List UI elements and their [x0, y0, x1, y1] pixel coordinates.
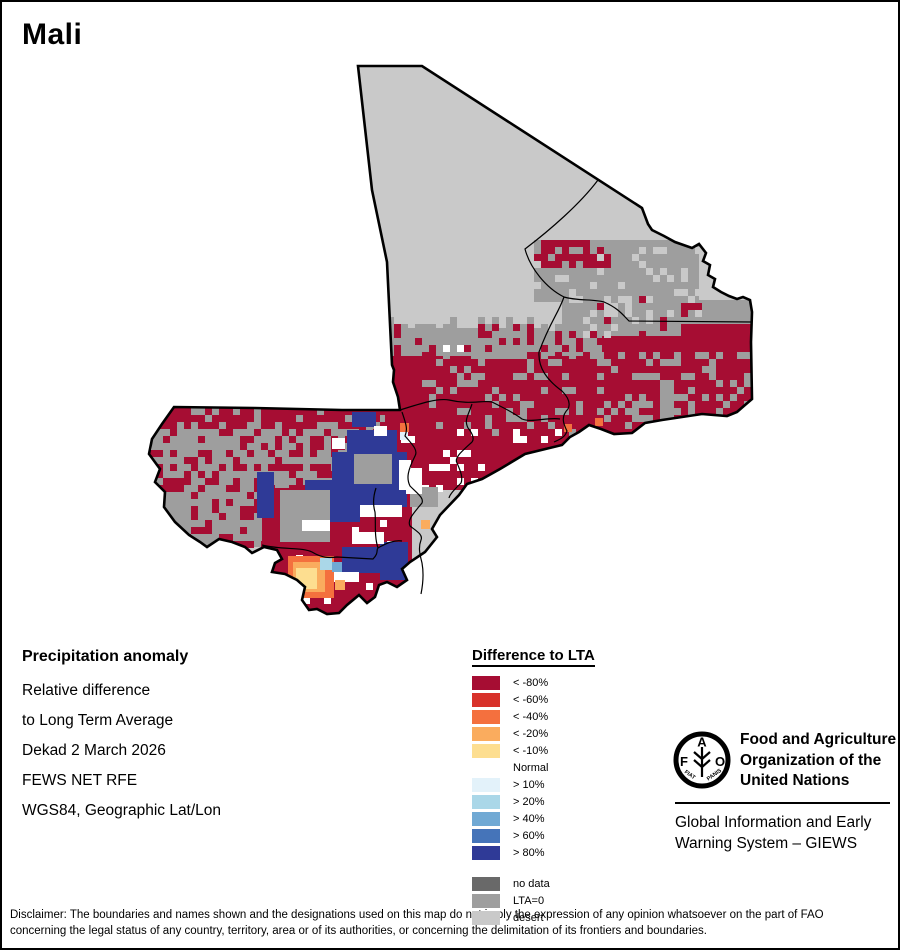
- map-cell: [184, 408, 191, 415]
- map-patch: [352, 412, 376, 427]
- map-cell: [499, 394, 506, 401]
- map-cell: [457, 345, 464, 352]
- map-cell: [205, 478, 212, 485]
- map-cell: [590, 324, 597, 331]
- map-cell: [709, 373, 716, 380]
- info-lines: Relative differenceto Long Term AverageD…: [22, 676, 322, 826]
- map-cell: [576, 338, 583, 345]
- fao-divider: [675, 802, 890, 804]
- map-cell: [268, 415, 275, 422]
- map-cell: [394, 352, 401, 359]
- map-patch: [296, 568, 317, 589]
- map-cell: [527, 324, 534, 331]
- map-cell: [219, 464, 226, 471]
- map-cell: [394, 331, 401, 338]
- legend-row: LTA=0: [472, 892, 642, 909]
- map-cell: [548, 247, 555, 254]
- map-cell: [506, 415, 513, 422]
- map-cell: [429, 324, 436, 331]
- map-cell: [730, 331, 737, 338]
- map-cell: [436, 464, 443, 471]
- map-patch: [354, 454, 392, 484]
- map-cell: [618, 338, 625, 345]
- map-cell: [506, 338, 513, 345]
- map-cell: [688, 373, 695, 380]
- legend-row: < -10%: [472, 742, 642, 759]
- map-cell: [569, 352, 576, 359]
- map-cell: [240, 415, 247, 422]
- map-cell: [226, 450, 233, 457]
- map-cell: [744, 324, 751, 331]
- map-cell: [597, 247, 604, 254]
- legend-row: < -60%: [472, 691, 642, 708]
- info-line: WGS84, Geographic Lat/Lon: [22, 796, 322, 826]
- map-cell: [429, 464, 436, 471]
- map-cell: [506, 317, 513, 324]
- map-cell: [611, 310, 618, 317]
- map-cell: [450, 324, 457, 331]
- map-cell: [667, 359, 674, 366]
- map-cell: [632, 373, 639, 380]
- map-cell: [534, 352, 541, 359]
- map-cell: [709, 366, 716, 373]
- map-cell: [338, 415, 345, 422]
- map-cell: [681, 422, 688, 429]
- giews-label: Global Information and Early Warning Sys…: [675, 812, 871, 854]
- map-cell: [457, 429, 464, 436]
- map-cell: [219, 513, 226, 520]
- map-cell: [471, 352, 478, 359]
- map-cell: [681, 373, 688, 380]
- map-cell: [268, 611, 275, 618]
- map-cell: [639, 394, 646, 401]
- map-cell: [569, 261, 576, 268]
- map-cell: [233, 485, 240, 492]
- map-cell: [149, 485, 156, 492]
- map-cell: [149, 408, 156, 415]
- map-cell: [317, 415, 324, 422]
- map-cell: [205, 527, 212, 534]
- map-cell: [674, 429, 681, 436]
- map-cell: [247, 541, 254, 548]
- legend-row: desert: [472, 909, 642, 926]
- map-cell: [534, 331, 541, 338]
- map-cell: [387, 520, 394, 527]
- map-cell: [583, 254, 590, 261]
- legend-label: > 20%: [513, 796, 545, 808]
- map-cell: [436, 422, 443, 429]
- map-cell: [618, 282, 625, 289]
- map-cell: [268, 422, 275, 429]
- map-cell: [702, 352, 709, 359]
- map-cell: [191, 415, 198, 422]
- map-cell: [513, 338, 520, 345]
- map-cell: [492, 338, 499, 345]
- legend-swatch: [472, 829, 500, 843]
- map-cell: [520, 352, 527, 359]
- map-cell: [667, 408, 674, 415]
- map-cell: [198, 415, 205, 422]
- map-cell: [695, 331, 702, 338]
- map-cell: [604, 261, 611, 268]
- map-cell: [485, 331, 492, 338]
- map-cell: [541, 261, 548, 268]
- map-cell: [156, 408, 163, 415]
- map-cell: [555, 429, 562, 436]
- map-cell: [646, 359, 653, 366]
- map-cell: [695, 303, 702, 310]
- map-cell: [562, 254, 569, 261]
- map-cell: [660, 247, 667, 254]
- map-cell: [667, 352, 674, 359]
- map-cell: [436, 331, 443, 338]
- map-cell: [240, 506, 247, 513]
- map-cell: [275, 436, 282, 443]
- map-cell: [499, 338, 506, 345]
- map-cell: [170, 429, 177, 436]
- map-cell: [562, 345, 569, 352]
- map-cell: [534, 485, 541, 492]
- map-patch: [400, 423, 409, 432]
- map-patch: [335, 580, 345, 590]
- map-cell: [667, 380, 674, 387]
- map-cell: [513, 415, 520, 422]
- map-cell: [534, 282, 541, 289]
- map-cell: [289, 471, 296, 478]
- legend-swatch: [472, 676, 500, 690]
- map-cell: [653, 373, 660, 380]
- map-cell: [604, 415, 611, 422]
- map-cell: [338, 534, 345, 541]
- map-cell: [660, 401, 667, 408]
- map-cell: [681, 275, 688, 282]
- map-cell: [597, 338, 604, 345]
- map-cell: [527, 366, 534, 373]
- map-cell: [156, 450, 163, 457]
- map-cell: [667, 275, 674, 282]
- map-cell: [485, 422, 492, 429]
- map-cell: [597, 268, 604, 275]
- map-cell: [576, 408, 583, 415]
- map-patch: [360, 505, 402, 517]
- legend-label: < -40%: [513, 711, 548, 723]
- map-cell: [646, 268, 653, 275]
- map-cell: [569, 289, 576, 296]
- map-cell: [429, 380, 436, 387]
- map-cell: [226, 429, 233, 436]
- map-cell: [723, 401, 730, 408]
- map-cell: [443, 324, 450, 331]
- map-cell: [303, 415, 310, 422]
- legend-row: no data: [472, 875, 642, 892]
- map-cell: [541, 387, 548, 394]
- map-cell: [352, 401, 359, 408]
- map-cell: [457, 373, 464, 380]
- map-cell: [548, 422, 555, 429]
- map-cell: [660, 429, 667, 436]
- map-cell: [282, 422, 289, 429]
- map-cell: [317, 471, 324, 478]
- map-cell: [429, 331, 436, 338]
- map-cell: [590, 310, 597, 317]
- map-cell: [611, 338, 618, 345]
- map-cell: [583, 261, 590, 268]
- map-cell: [632, 401, 639, 408]
- legend-swatch: [472, 795, 500, 809]
- map-cell: [226, 415, 233, 422]
- map-cell: [555, 359, 562, 366]
- map-cell: [149, 415, 156, 422]
- map-cell: [485, 352, 492, 359]
- map-cell: [177, 415, 184, 422]
- map-cell: [660, 359, 667, 366]
- map-cell: [443, 345, 450, 352]
- map-cell: [247, 513, 254, 520]
- legend-swatch: [472, 761, 500, 775]
- map-cell: [170, 415, 177, 422]
- map-cell: [163, 541, 170, 548]
- map-cell: [338, 401, 345, 408]
- map-cell: [240, 436, 247, 443]
- map-cell: [247, 415, 254, 422]
- map-patch: [257, 472, 274, 518]
- legend-row: < -20%: [472, 725, 642, 742]
- map-cell: [695, 352, 702, 359]
- map-cell: [443, 450, 450, 457]
- fao-letter-o: O: [715, 754, 725, 769]
- map-cell: [506, 331, 513, 338]
- map-cell: [177, 478, 184, 485]
- map-cell: [611, 324, 618, 331]
- map-cell: [660, 352, 667, 359]
- map-cell: [184, 422, 191, 429]
- map-cell: [639, 261, 646, 268]
- map-cell: [702, 394, 709, 401]
- map-cell: [660, 380, 667, 387]
- map-cell: [233, 478, 240, 485]
- map-cell: [394, 345, 401, 352]
- map-cell: [618, 296, 625, 303]
- map-cell: [177, 541, 184, 548]
- map-cell: [289, 436, 296, 443]
- map-cell: [674, 352, 681, 359]
- map-cell: [688, 387, 695, 394]
- map-cell: [541, 345, 548, 352]
- map-cell: [359, 401, 366, 408]
- map-cell: [513, 324, 520, 331]
- map-cell: [541, 324, 548, 331]
- map-cell: [681, 268, 688, 275]
- map-cell: [345, 401, 352, 408]
- map-cell: [590, 331, 597, 338]
- map-cell: [261, 443, 268, 450]
- map-cell: [639, 352, 646, 359]
- map-cell: [660, 268, 667, 275]
- legend-swatch: [472, 846, 500, 860]
- map-cell: [513, 352, 520, 359]
- map-cell: [548, 240, 555, 247]
- map-cell: [625, 422, 632, 429]
- map-cell: [646, 310, 653, 317]
- map-cell: [275, 464, 282, 471]
- map-cell: [611, 366, 618, 373]
- map-cell: [520, 401, 527, 408]
- map-cell: [324, 429, 331, 436]
- map-cell: [464, 345, 471, 352]
- map-cell: [310, 415, 317, 422]
- map-cell: [149, 401, 156, 408]
- map-patch: [320, 558, 332, 570]
- map-cell: [170, 485, 177, 492]
- map-cell: [380, 401, 387, 408]
- map-cell: [198, 527, 205, 534]
- map-cell: [429, 401, 436, 408]
- map-cell: [289, 541, 296, 548]
- map-cell: [541, 352, 548, 359]
- map-cell: [198, 471, 205, 478]
- map-cell: [415, 324, 422, 331]
- map-cell: [590, 282, 597, 289]
- map-cell: [527, 331, 534, 338]
- map-cell: [191, 527, 198, 534]
- map-cell: [296, 422, 303, 429]
- map-cell: [527, 317, 534, 324]
- map-cell: [653, 275, 660, 282]
- map-cell: [310, 443, 317, 450]
- map-cell: [681, 394, 688, 401]
- map-cell: [709, 422, 716, 429]
- map-cell: [485, 324, 492, 331]
- legend-row: > 40%: [472, 810, 642, 827]
- map-cell: [660, 324, 667, 331]
- map-cell: [618, 401, 625, 408]
- map-cell: [646, 401, 653, 408]
- map-cell: [625, 408, 632, 415]
- map-cell: [681, 324, 688, 331]
- map-cell: [205, 520, 212, 527]
- map-cell: [226, 499, 233, 506]
- map-cell: [338, 422, 345, 429]
- map-cell: [163, 527, 170, 534]
- map-cell: [513, 429, 520, 436]
- map-cell: [625, 394, 632, 401]
- map-cell: [268, 464, 275, 471]
- map-cell: [443, 464, 450, 471]
- info-line: Dekad 2 March 2026: [22, 736, 322, 766]
- map-cell: [394, 534, 401, 541]
- map-cell: [296, 464, 303, 471]
- map-cell: [184, 415, 191, 422]
- map-cell: [555, 275, 562, 282]
- map-cell: [730, 380, 737, 387]
- info-line: FEWS NET RFE: [22, 766, 322, 796]
- map-cell: [681, 338, 688, 345]
- map-cell: [366, 401, 373, 408]
- map-cell: [660, 422, 667, 429]
- map-cell: [534, 254, 541, 261]
- map-cell: [716, 352, 723, 359]
- map-cell: [485, 394, 492, 401]
- map-cell: [464, 366, 471, 373]
- map-cell: [513, 345, 520, 352]
- legend-swatch: [472, 911, 500, 925]
- map-cell: [422, 324, 429, 331]
- map-cell: [450, 331, 457, 338]
- legend-label: desert: [513, 912, 544, 924]
- map-cell: [688, 401, 695, 408]
- map-cell: [205, 422, 212, 429]
- map-cell: [443, 352, 450, 359]
- map-cell: [674, 394, 681, 401]
- legend-label: > 40%: [513, 813, 545, 825]
- map-cell: [429, 352, 436, 359]
- map-cell: [205, 457, 212, 464]
- map-cell: [541, 254, 548, 261]
- map-cell: [632, 408, 639, 415]
- map-cell: [387, 415, 394, 422]
- map-cell: [674, 359, 681, 366]
- map-cell: [408, 436, 415, 443]
- map-cell: [170, 464, 177, 471]
- map-cell: [408, 331, 415, 338]
- map-cell: [282, 429, 289, 436]
- map-cell: [534, 373, 541, 380]
- map-cell: [695, 289, 702, 296]
- map-cell: [618, 352, 625, 359]
- map-cell: [254, 429, 261, 436]
- map-cell: [576, 254, 583, 261]
- map-cell: [366, 604, 373, 611]
- map-cell: [429, 345, 436, 352]
- map-cell: [583, 240, 590, 247]
- map-cell: [555, 261, 562, 268]
- map-cell: [541, 436, 548, 443]
- map-cell: [527, 338, 534, 345]
- map-cell: [443, 331, 450, 338]
- map-cell: [247, 450, 254, 457]
- map-cell: [667, 394, 674, 401]
- map-cell: [597, 387, 604, 394]
- legend-swatch: [472, 744, 500, 758]
- map-cell: [562, 275, 569, 282]
- map-cell: [429, 338, 436, 345]
- map-cell: [660, 394, 667, 401]
- map-cell: [555, 254, 562, 261]
- map-cell: [716, 394, 723, 401]
- fao-logo: F A O FIAT PANIS: [672, 730, 732, 790]
- map-cell: [240, 443, 247, 450]
- map-cell: [478, 373, 485, 380]
- map-cell: [331, 401, 338, 408]
- map-document: Mali Precipitation anomaly Relative diff…: [0, 0, 900, 950]
- map-cell: [604, 317, 611, 324]
- map-cell: [156, 534, 163, 541]
- map-patch: [280, 490, 330, 542]
- map-cell: [674, 289, 681, 296]
- map-cell: [520, 331, 527, 338]
- map-cell: [541, 485, 548, 492]
- map-cell: [646, 373, 653, 380]
- map-cell: [240, 513, 247, 520]
- map-cell: [275, 415, 282, 422]
- map-cell: [576, 345, 583, 352]
- map-cell: [212, 415, 219, 422]
- disclaimer-line: concerning the legal status of any count…: [10, 923, 894, 939]
- map-cell: [555, 240, 562, 247]
- map-cell: [681, 310, 688, 317]
- map-cell: [205, 408, 212, 415]
- map-cell: [597, 352, 604, 359]
